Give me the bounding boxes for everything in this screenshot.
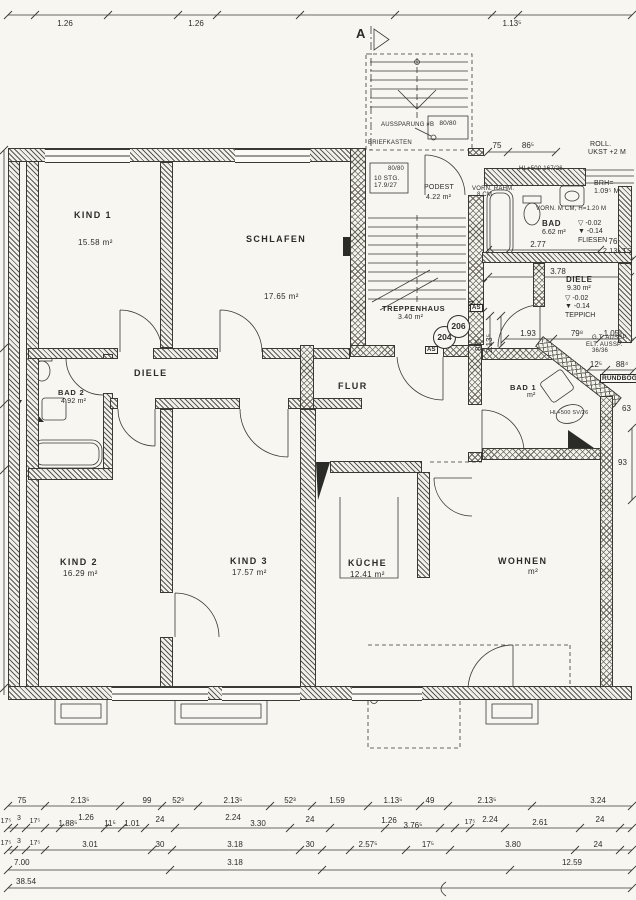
note-roll-2: UKST +2 M [588,149,626,156]
note-hl-sv: HL+500 SV/26 [550,410,588,416]
room-label-kind3: KIND 3 [230,556,268,566]
door-number-206: 206 [447,315,470,338]
dim-label: 12⁵ [590,360,602,369]
dim-label: 3.24 [590,796,606,805]
toilet-og-tank [523,196,541,203]
dim-label: 3.30 [250,819,266,828]
note-vorn-m: VORN. M CM, H=1.20 M [536,206,606,212]
entry-door-arc [397,357,443,400]
note-stg: 10 STG. [374,175,400,182]
wall-corridor-top-2 [153,348,218,359]
wall-mark-3 [316,462,330,500]
wall-corridor-bot-2 [155,398,240,409]
dim-label: 1.26 [78,813,94,822]
note-stg2: 17.9/27 [374,182,397,189]
room-area-bad2: 4.92 m² [61,398,86,405]
room-area-kind1: 15.58 m² [78,238,113,247]
note-as-2: AS [425,346,438,354]
bathtub-og-icon [487,190,513,256]
bay-window-1 [55,698,107,724]
dim-label: 12.59 [562,858,582,867]
bay-window-3 [486,698,538,724]
niche-leader [415,128,431,136]
room-label-wohnen: WOHNEN [498,556,547,566]
room-label-kueche: KÜCHE [348,558,387,568]
room-area-diele-og: 9.30 m² [567,285,591,292]
section-marker-label: A [356,26,365,41]
room-label-kind2: KIND 2 [60,557,98,567]
room-label-diele: DIELE [134,368,168,378]
dim-label-vertical: 88⁵ [474,339,483,351]
window-top-schlafen [235,149,310,163]
wall-outer-right-lower [600,396,613,688]
dim-label: 17⁵ [30,818,41,825]
dim-label: 2.77 [530,240,546,249]
stair-treads-upper [370,62,468,107]
wall-kind1-schlafen [160,162,173,348]
wall-schlafen-stair [350,148,366,348]
dim-label: 1.26 [57,19,73,28]
level-mark: ▼ -0.14 [565,303,590,310]
dim-label: 2.57⁵ [359,840,378,849]
dim-label: 1.13⁵ [384,796,403,805]
note-hl: HL+500 167/26 [519,166,563,172]
sink-bad1-icon [539,369,574,404]
dim-label: 3.18 [227,840,243,849]
note-niche-size: 80/80 [439,120,456,127]
wall-kueche-top [330,461,422,473]
level-mark: ▽ -0.02 [565,294,588,302]
dimension-break-mark [441,882,446,896]
window-top-kind1 [45,149,130,163]
kind2-kind3-door [175,593,219,637]
wall-kind2-kind3-a [160,409,173,593]
dim-label: 24 [306,815,315,824]
stair-treads-lower [368,218,466,299]
room-label-flur: FLUR [338,381,368,391]
dim-label: 11⁵ [104,819,116,828]
room-label-schlafen: SCHLAFEN [246,234,306,244]
bay-window-2 [175,698,267,724]
sink-og-icon [560,186,584,206]
dim-label: 38.54 [16,877,36,886]
diele-og-door [498,305,540,347]
note-elt-aussp-2: 36/36 [592,348,608,354]
dim-label: 88⁴ [616,360,628,369]
room-area-kueche: 12.41 m² [350,570,385,579]
kind2-door [118,409,155,446]
room-area-kind3: 17.57 m² [232,568,267,577]
note-briefkasten: BRIEFKASTEN [368,140,412,146]
dim-label: 17⁵ [30,840,41,847]
wall-outer-left-1 [8,148,20,698]
dim-label: 52³ [284,796,296,805]
dim-label: 63 [622,404,631,413]
dim-label: 30 [306,840,315,849]
room-label-bad-og: BAD [542,219,561,228]
window-bottom-kind2 [112,687,208,701]
dim-label: 17⁵ [422,840,434,849]
wall-flur-right-a [468,345,482,405]
dim-label: 24 [596,815,605,824]
dim-label: 3 [17,815,21,822]
dim-label: 24 [156,815,165,824]
level-mark: ▽ -0.02 [578,219,601,227]
dim-label: 2.61 [532,818,548,827]
note-rundbogen: RUNDBOG. [600,374,636,383]
wall-stair-right-b [468,195,484,345]
dim-label: 3.80 [505,840,521,849]
wall-flur-left [300,345,314,409]
wohnen-south-door [468,645,513,690]
window-bottom-kind3 [222,687,300,701]
room-area-bad1: m² [527,392,536,399]
dim-label: 17⁵ [1,818,12,825]
note-ts: 2.13⁵ TS [603,248,632,255]
dim-label: 3.78 [550,267,566,276]
note-vorn-rahm-2: 8 CM [477,192,492,198]
kind3-door [240,409,288,457]
dim-label: 3.01 [82,840,98,849]
note-as-1: AS [470,304,483,312]
wohnen-door [434,478,472,516]
dim-label: 1.88⁵ [59,819,78,828]
wall-dieleog-left [533,263,545,307]
dim-label: 2.13⁵ [71,796,90,805]
wall-mark-4 [568,430,594,448]
wall-kueche-right [417,472,430,578]
dim-label: 1.26 [188,19,204,28]
dim-label: 79⁸ [571,329,583,338]
floor-finish: FLIESEN [578,237,607,244]
wall-bad2-bottom [28,468,113,480]
dim-label: 2.24 [482,815,498,824]
wall-corridor-bot-1 [110,398,118,409]
note-aussparung: AUSSPARUNG #B [381,122,434,128]
dim-label: 76 [609,237,618,246]
dim-label: 2.13⁵ [478,796,497,805]
wall-kind3-right [300,409,316,690]
dim-label: 1.93 [520,329,536,338]
note-gt-aussp: G.T. AUSSP. [592,335,628,341]
room-area-treppenhaus: 3.40 m² [398,314,423,321]
dim-label: 30 [156,840,165,849]
room-label-bad1: BAD 1 [510,383,537,392]
dim-label: 3 [17,838,21,845]
section-arrow-icon [374,29,389,50]
room-area-bad-og: 6.62 m² [542,229,566,236]
dim-label: 93 [618,458,627,467]
bathtub-bad2-icon [32,440,102,468]
dim-label: 17⁵ [1,840,12,847]
room-label-bad2: BAD 2 [58,388,85,397]
schlafen-door [220,310,262,352]
note-roll-1: ROLL. [590,141,611,148]
level-mark: ▼ -0.14 [578,228,603,235]
dim-label: 3.76⁵ [404,821,423,830]
dim-label: 2.13⁵ [224,796,243,805]
wall-stair-right-a [468,148,484,156]
wall-outer-bottom [8,686,632,700]
dim-label: 1.13⁵ [503,19,522,28]
note-shaft-size: 80/80 [388,166,404,172]
room-label-treppenhaus: TREPPENHAUS [382,304,445,313]
wall-flur-top-1 [350,345,395,357]
dim-label: 49 [426,796,435,805]
dim-label: 75 [493,141,502,150]
stairwell-outline [366,54,472,150]
floorplan-sheet: 1.26 1.26 1.13⁵ 75 86⁵ 2.77 76 2.13⁵ TS … [0,0,636,900]
room-area-schlafen: 17.65 m² [264,292,299,301]
dim-label: 1.59 [329,796,345,805]
wall-bad2-right-a [103,354,113,359]
floor-finish: TEPPICH [565,312,595,319]
dim-label: 75 [18,796,27,805]
room-label-diele-og: DIELE [566,275,593,284]
note-brh-2: 1.09⁵ M [594,188,620,195]
dim-label: 1.26 [381,816,397,825]
dim-label: 1.01 [124,819,140,828]
dim-label: 3.18 [227,858,243,867]
dim-label-vertical: 2.13⁵ [485,334,494,353]
window-bottom-right [352,687,422,701]
room-area-podest: 4.22 m² [426,194,451,201]
room-area-wohnen: m² [528,567,538,576]
wall-kind2-kind3-b [160,637,173,690]
room-label-podest: PODEST [424,184,454,191]
wall-bad1-bottom [482,448,604,460]
dim-label: 86⁵ [522,141,534,150]
dim-label: 2.24 [225,813,241,822]
dim-label: 99 [143,796,152,805]
wall-flur-right-b [468,452,482,462]
room-area-kind2: 16.29 m² [63,569,98,578]
dim-label: 24 [594,840,603,849]
room-label-kind1: KIND 1 [74,210,112,220]
dim-label: 52³ [172,796,184,805]
dim-label: 7.00 [14,858,30,867]
bad1-door [482,410,524,452]
wall-outer-left-2 [26,148,39,698]
dim-label: 17⁵ [465,819,476,826]
note-brh-1: BRH= [594,180,614,187]
kind1-door [120,310,162,352]
